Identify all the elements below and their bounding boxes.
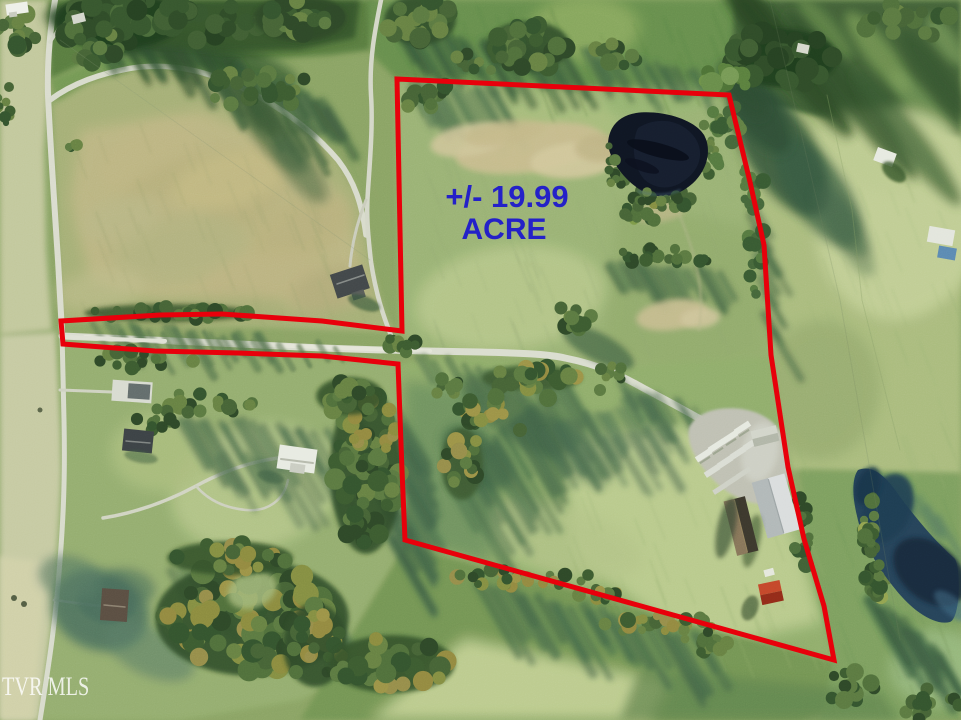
svg-text:+/- 19.99: +/- 19.99	[445, 179, 568, 214]
svg-text:TVR MLS: TVR MLS	[2, 673, 89, 702]
svg-text:ACRE: ACRE	[461, 213, 546, 246]
